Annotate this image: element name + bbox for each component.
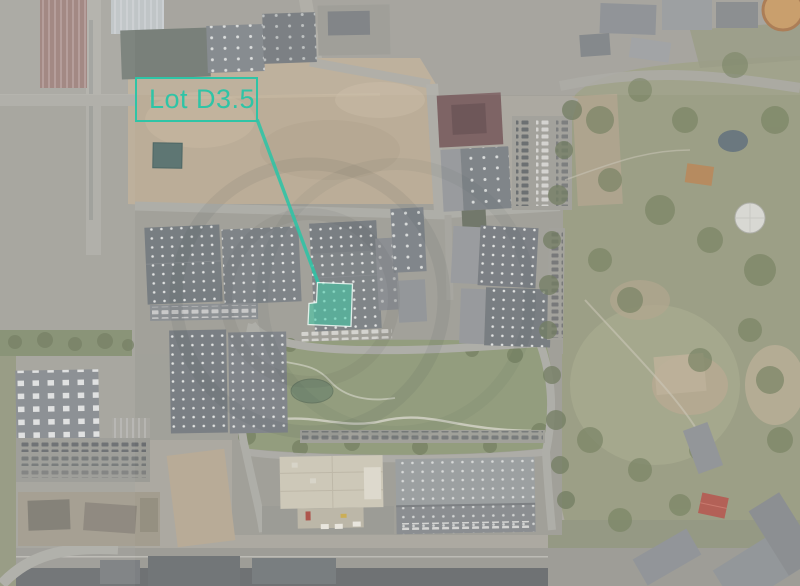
aerial-photo (0, 0, 800, 586)
aerial-map-view: Lot D3.5 (0, 0, 800, 586)
haze-overlay (0, 0, 800, 586)
lot-label: Lot D3.5 (135, 77, 258, 122)
